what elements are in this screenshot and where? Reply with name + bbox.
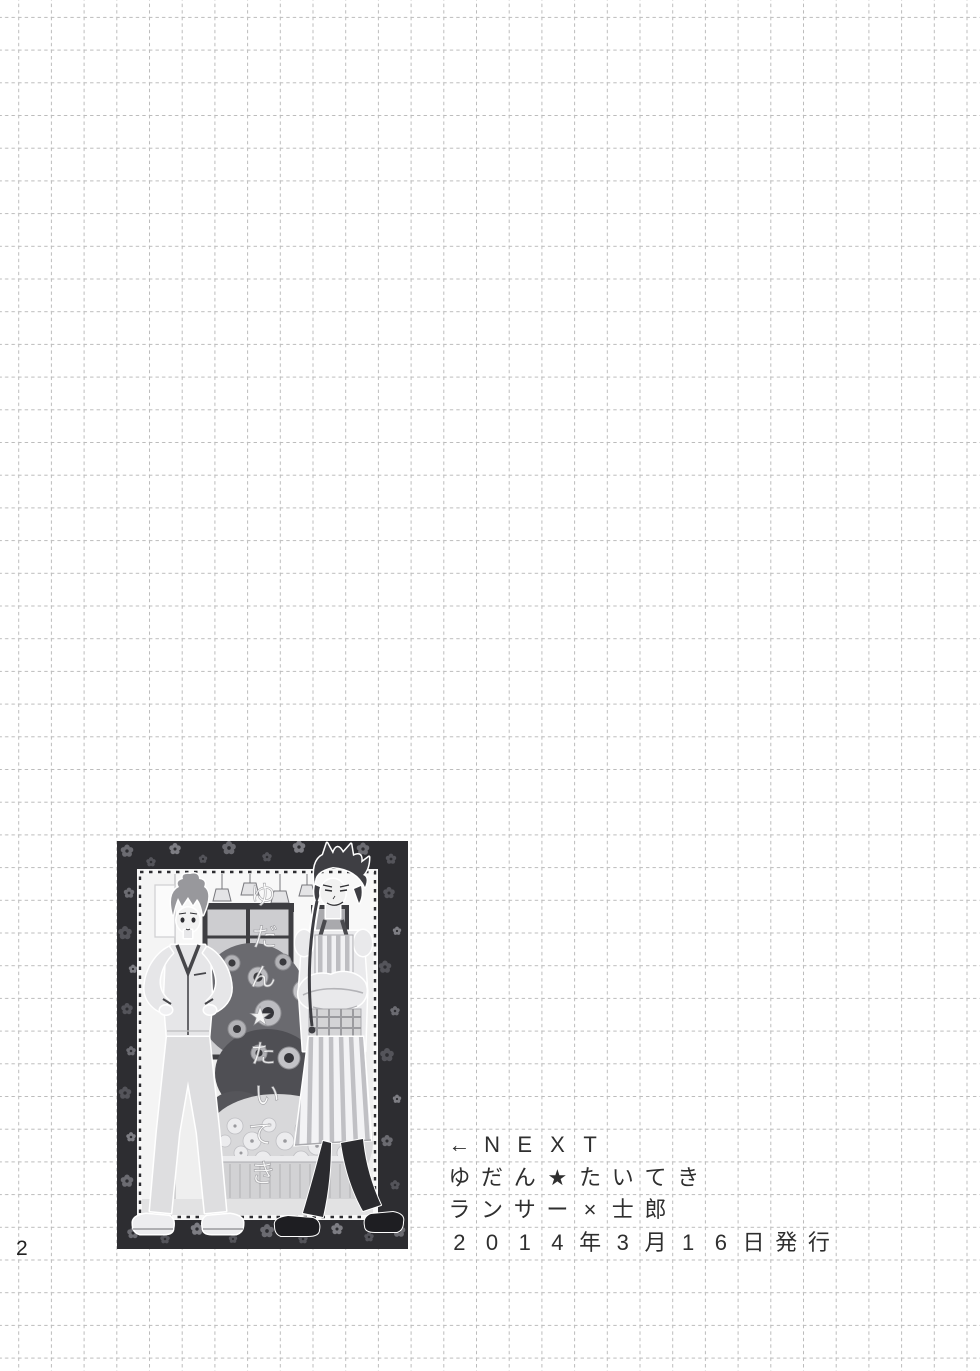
colophon-char: ゆ (443, 1162, 476, 1195)
svg-text:て: て (248, 1119, 274, 1149)
colophon-char: き (672, 1162, 705, 1195)
svg-text:だ: だ (252, 922, 278, 952)
colophon-char: ← (443, 1129, 476, 1162)
apron-skirt (295, 1035, 371, 1147)
colophon-char: 2 (443, 1227, 476, 1260)
svg-text:い: い (254, 1080, 280, 1110)
colophon-char: 日 (737, 1227, 770, 1260)
colophon-char: 行 (803, 1227, 836, 1260)
doujinshi-page: ゆ だ ん ★ た い て き (0, 0, 980, 1371)
colophon-char: ン (476, 1194, 509, 1227)
svg-text:ん: ん (250, 962, 276, 992)
colophon-char: い (606, 1162, 639, 1195)
colophon-char: て (639, 1162, 672, 1195)
page-number: 2 (16, 1233, 28, 1265)
apron-waist-plaid (309, 1009, 361, 1039)
colophon-char: 発 (770, 1227, 803, 1260)
colophon-char: た (574, 1162, 607, 1195)
colophon-char: 4 (541, 1227, 574, 1260)
svg-text:た: た (250, 1039, 276, 1069)
svg-text:き: き (250, 1158, 276, 1188)
svg-text:ゆ: ゆ (250, 880, 276, 910)
colophon-char: 士 (606, 1194, 639, 1227)
colophon-char: T (574, 1129, 607, 1162)
colophon-char: 3 (606, 1227, 639, 1260)
colophon-char: 年 (574, 1227, 607, 1260)
colophon-char: 1 (672, 1227, 705, 1260)
colophon-char: 月 (639, 1227, 672, 1260)
colophon-char: 1 (508, 1227, 541, 1260)
colophon-title-line: ゆだん★たいてき (443, 1161, 705, 1194)
colophon-char: ん (508, 1162, 541, 1195)
colophon-date-line: 2014年3月16日発行 (443, 1227, 835, 1260)
colophon-char: 郎 (639, 1194, 672, 1227)
colophon-char: N (476, 1129, 509, 1162)
cover-illustration: ゆ だ ん ★ た い て き (117, 841, 408, 1249)
colophon-pairing-line: ランサー×士郎 (443, 1194, 672, 1227)
colophon-char: × (574, 1194, 607, 1227)
colophon-char: ★ (541, 1162, 574, 1195)
colophon-char: E (508, 1129, 541, 1162)
colophon-char: だ (476, 1162, 509, 1195)
colophon-char: 6 (705, 1227, 738, 1260)
colophon-char: ー (541, 1194, 574, 1227)
colophon-char: 0 (476, 1227, 509, 1260)
svg-text:★: ★ (248, 1001, 271, 1031)
colophon-char: ラ (443, 1194, 476, 1227)
colophon-next-line: ←NEXT (443, 1129, 606, 1162)
colophon-char: X (541, 1129, 574, 1162)
colophon-char: サ (508, 1194, 541, 1227)
cover-illustration-art: ゆ だ ん ★ た い て き (117, 841, 408, 1249)
